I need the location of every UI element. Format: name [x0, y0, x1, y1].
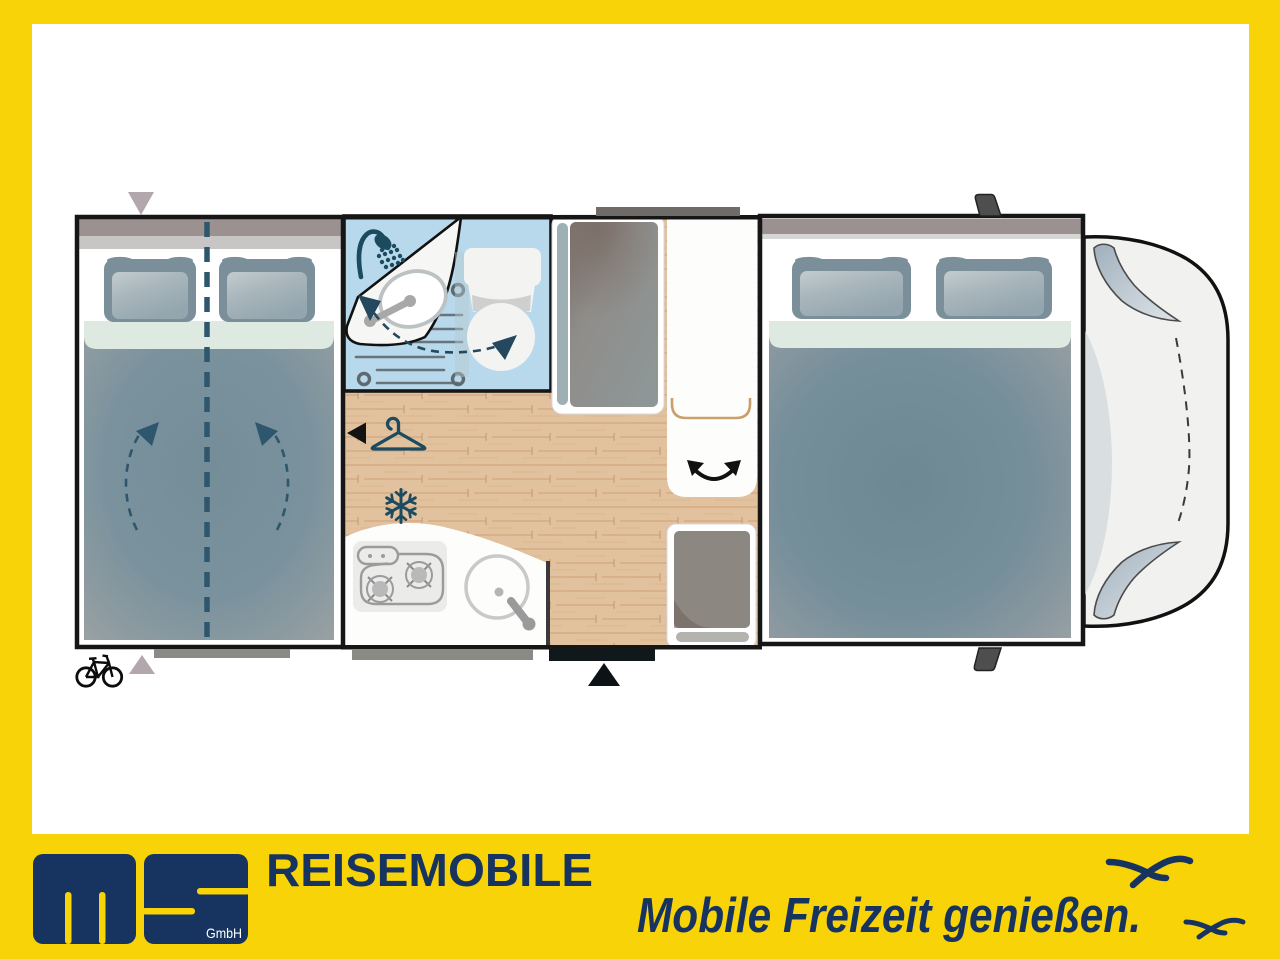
svg-text:Mobile Freizeit genießen.: Mobile Freizeit genießen.: [637, 889, 1141, 943]
svg-text:REISEMOBILE: REISEMOBILE: [266, 844, 593, 896]
svg-text:GmbH: GmbH: [206, 925, 242, 941]
